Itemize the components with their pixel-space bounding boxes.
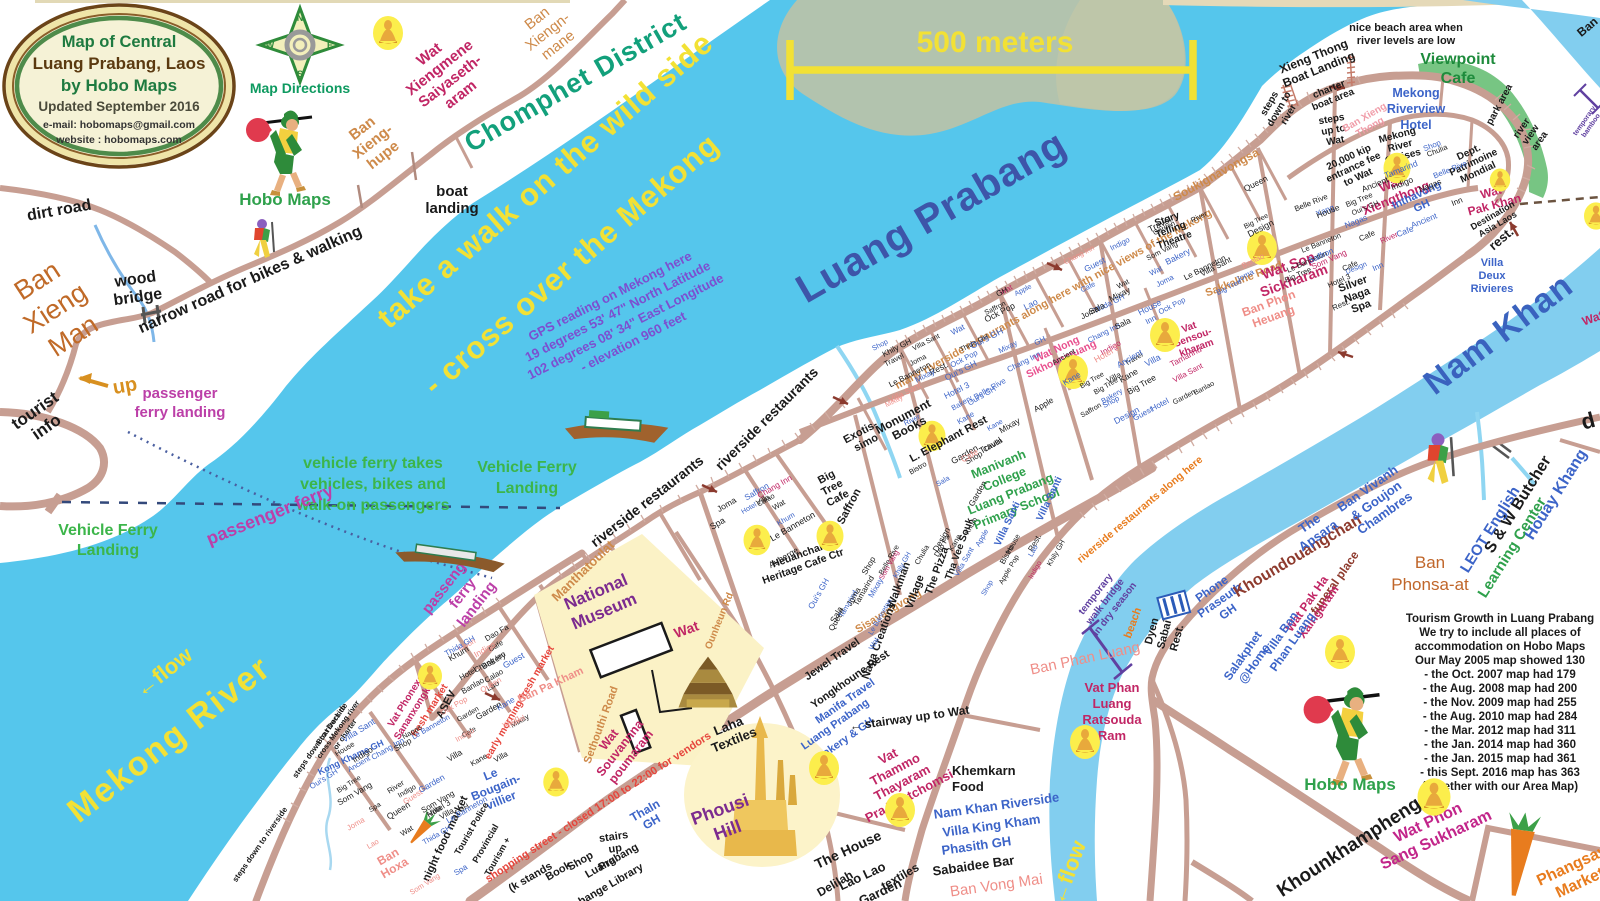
svg-text:- the Oct. 2007 map had 179: - the Oct. 2007 map had 179 xyxy=(1424,669,1575,681)
svg-text:up: up xyxy=(111,373,139,399)
svg-text:Mekong: Mekong xyxy=(1392,86,1439,100)
svg-text:Spa: Spa xyxy=(452,862,469,877)
svg-text:Chulia: Chulia xyxy=(913,543,932,567)
svg-text:Lao: Lao xyxy=(365,837,380,851)
svg-text:Vehicle Ferry: Vehicle Ferry xyxy=(477,459,577,476)
svg-text:vehicle ferry takes: vehicle ferry takes xyxy=(303,455,443,472)
svg-text:Sala: Sala xyxy=(934,473,951,488)
svg-text:Khemkarn: Khemkarn xyxy=(952,763,1016,778)
svg-text:Bistro: Bistro xyxy=(907,459,928,476)
svg-text:N: N xyxy=(297,13,304,23)
svg-text:d: d xyxy=(1578,407,1597,435)
svg-text:- the Aug. 2008 map had 200: - the Aug. 2008 map had 200 xyxy=(1423,683,1577,695)
svg-text:Shop: Shop xyxy=(859,554,878,576)
svg-text:Joma: Joma xyxy=(345,815,367,833)
svg-text:Wat: Wat xyxy=(1148,263,1165,277)
svg-text:Mixay: Mixay xyxy=(883,392,904,409)
svg-text:Luang Prabang, Laos: Luang Prabang, Laos xyxy=(33,54,206,73)
svg-text:ferry landing: ferry landing xyxy=(135,404,226,421)
svg-text:Ratsouda: Ratsouda xyxy=(1082,712,1142,727)
svg-text:website : hobomaps.com: website : hobomaps.com xyxy=(55,134,181,146)
svg-text:Deux: Deux xyxy=(1479,270,1507,282)
svg-text:Apple: Apple xyxy=(1032,395,1056,414)
svg-text:Rest.: Rest. xyxy=(1331,297,1351,313)
svg-text:Mixay: Mixay xyxy=(997,415,1022,435)
svg-text:Luang: Luang xyxy=(1093,696,1132,711)
svg-text:Map Directions: Map Directions xyxy=(250,80,351,96)
svg-text:Landing: Landing xyxy=(496,480,558,497)
svg-text:We try to include all places o: We try to include all places of xyxy=(1419,627,1581,639)
svg-text:Inn: Inn xyxy=(1450,195,1464,208)
svg-text:Wat: Wat xyxy=(399,823,416,838)
svg-text:GH: GH xyxy=(1033,334,1047,347)
svg-text:500 meters: 500 meters xyxy=(917,26,1074,59)
svg-text:- the Aug. 2010 map had 284: - the Aug. 2010 map had 284 xyxy=(1423,711,1578,723)
svg-text:Riverview: Riverview xyxy=(1387,102,1446,116)
svg-text:narrow road for bikes & walkin: narrow road for bikes & walking xyxy=(136,223,365,337)
svg-text:Phonsa-at: Phonsa-at xyxy=(1391,575,1469,594)
svg-text:Villa: Villa xyxy=(1143,352,1162,369)
svg-text:Ban Vong Mai: Ban Vong Mai xyxy=(949,871,1044,901)
svg-text:Joma: Joma xyxy=(715,495,738,514)
svg-text:Queen: Queen xyxy=(385,799,412,821)
svg-text:Map of Central: Map of Central xyxy=(62,33,177,51)
svg-text:Food: Food xyxy=(952,779,984,794)
svg-text:river levels are low: river levels are low xyxy=(1357,35,1456,47)
svg-text:e-mail: hobomaps@gmail.com: e-mail: hobomaps@gmail.com xyxy=(43,119,195,131)
svg-text:Apple: Apple xyxy=(998,567,1013,586)
svg-text:Landing: Landing xyxy=(77,542,139,559)
svg-text:- the Jan. 2014 map had 360: - the Jan. 2014 map had 360 xyxy=(1424,739,1576,751)
svg-text:Cafe: Cafe xyxy=(1441,70,1476,87)
svg-text:Our May 2005 map showed 130: Our May 2005 map showed 130 xyxy=(1415,655,1585,667)
svg-text:accommodation on Hobo Maps: accommodation on Hobo Maps xyxy=(1415,641,1586,653)
svg-text:S: S xyxy=(297,69,303,79)
svg-text:Villa: Villa xyxy=(445,747,464,764)
svg-text:by Hobo Maps: by Hobo Maps xyxy=(61,76,177,95)
svg-text:- the Nov. 2009 map had 255: - the Nov. 2009 map had 255 xyxy=(1423,697,1577,709)
svg-text:Ban: Ban xyxy=(1415,553,1445,572)
svg-text:Oui's GH: Oui's GH xyxy=(806,576,832,610)
svg-text:Shop: Shop xyxy=(980,579,995,597)
svg-text:Viewpoint: Viewpoint xyxy=(1420,51,1496,68)
svg-text:Ram: Ram xyxy=(1098,728,1126,743)
svg-text:- this Sept. 2016 map has 363: - this Sept. 2016 map has 363 xyxy=(1420,767,1580,779)
svg-text:passenger: passenger xyxy=(142,385,217,402)
svg-text:Hobo Maps: Hobo Maps xyxy=(239,190,331,209)
svg-text:Vat Phan: Vat Phan xyxy=(1085,680,1140,695)
svg-text:nice beach area when: nice beach area when xyxy=(1349,22,1463,34)
svg-text:Cafe: Cafe xyxy=(1358,228,1377,243)
svg-text:landing: landing xyxy=(425,200,478,217)
svg-text:Updated September 2016: Updated September 2016 xyxy=(38,99,200,114)
svg-text:Guest: Guest xyxy=(501,650,527,671)
svg-text:E: E xyxy=(327,40,333,50)
svg-text:Saffron: Saffron xyxy=(1079,401,1103,419)
svg-text:Vehicle Ferry: Vehicle Ferry xyxy=(58,522,158,539)
svg-text:River: River xyxy=(1379,230,1400,246)
svg-text:- the Jan. 2015 map had 361: - the Jan. 2015 map had 361 xyxy=(1424,753,1577,765)
svg-text:- the Mar. 2012 map had 311: - the Mar. 2012 map had 311 xyxy=(1424,725,1576,737)
svg-text:Hobo Maps: Hobo Maps xyxy=(1304,775,1396,794)
svg-text:Rivieres: Rivieres xyxy=(1471,283,1514,295)
svg-text:Ancient: Ancient xyxy=(1410,211,1439,230)
svg-text:boat: boat xyxy=(436,183,468,200)
svg-text:Indigo: Indigo xyxy=(454,726,476,744)
svg-text:Banlao: Banlao xyxy=(1192,379,1215,396)
svg-text:Tourism Growth in Luang Praban: Tourism Growth in Luang Prabang xyxy=(1406,613,1594,625)
svg-text:W: W xyxy=(266,40,275,50)
svg-text:Villa: Villa xyxy=(1481,257,1504,269)
svg-text:Wat: Wat xyxy=(949,322,966,337)
